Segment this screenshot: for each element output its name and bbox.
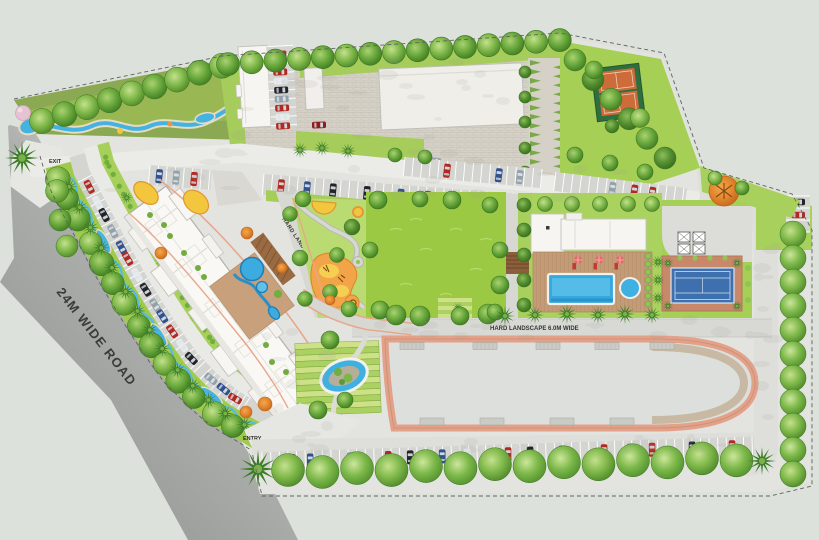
svg-text:EXIT: EXIT bbox=[49, 159, 62, 165]
